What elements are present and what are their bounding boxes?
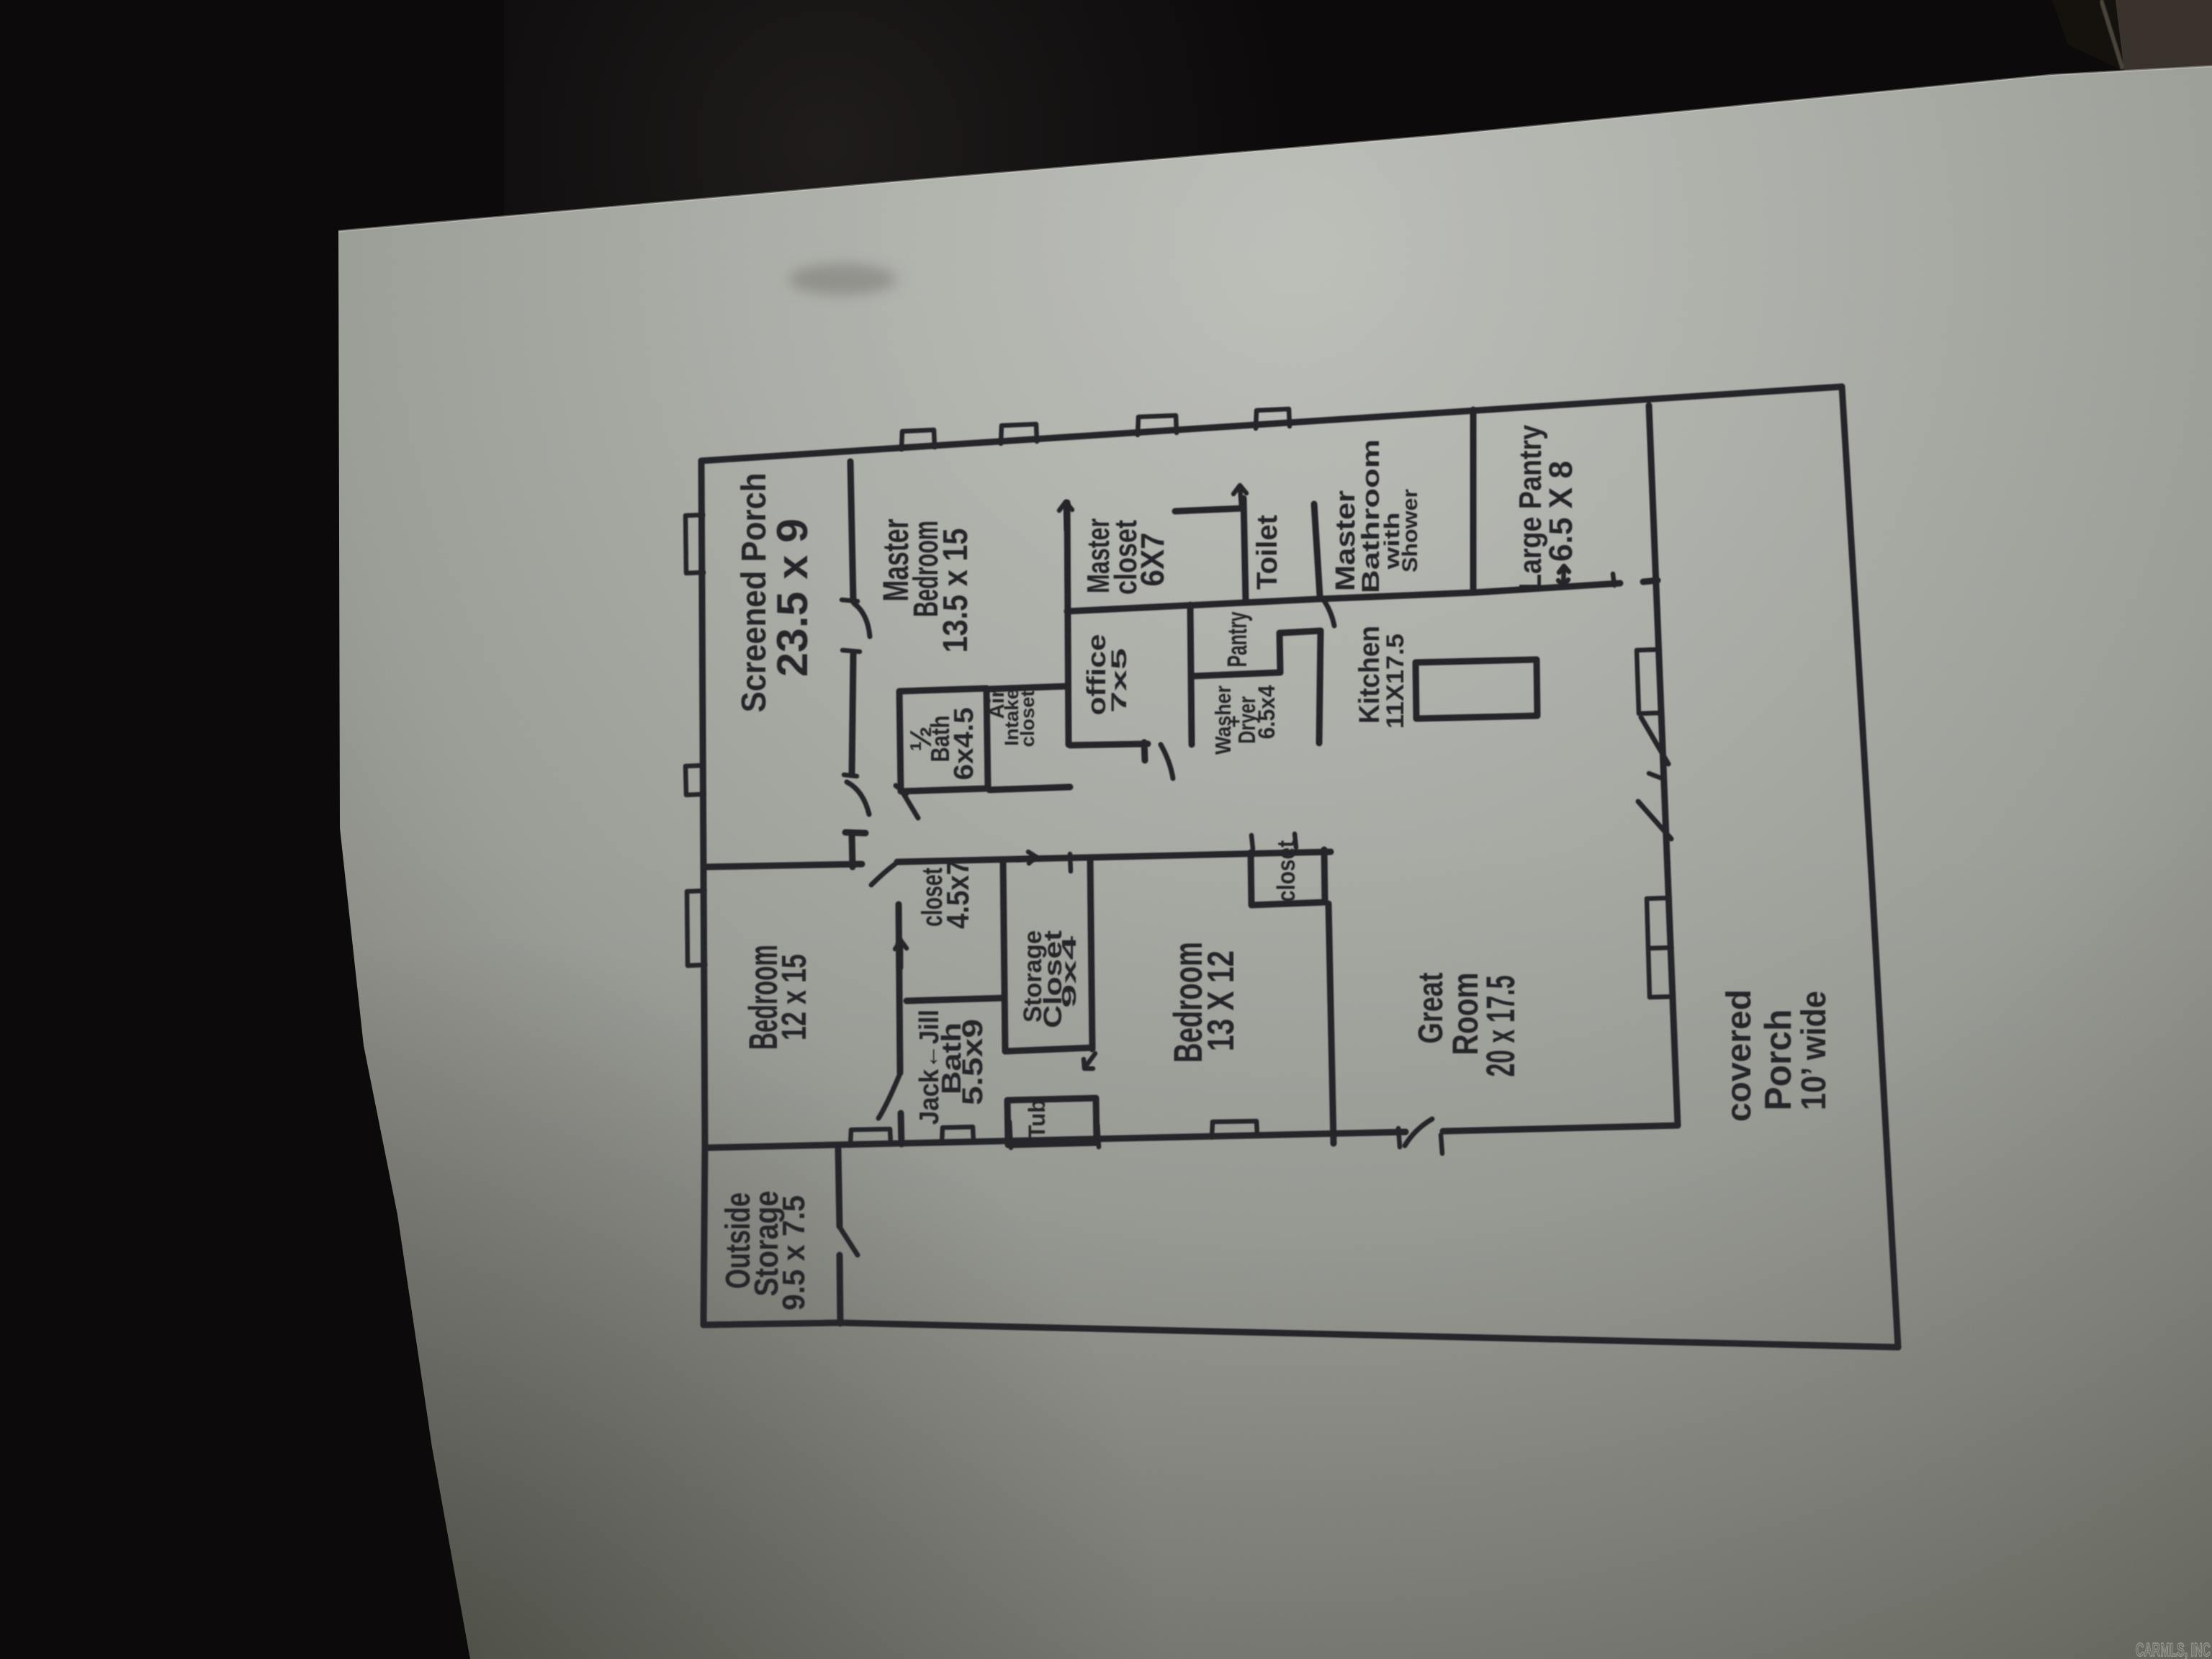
svg-text:CARMLS, INC: CARMLS, INC [2136, 1639, 2211, 1659]
